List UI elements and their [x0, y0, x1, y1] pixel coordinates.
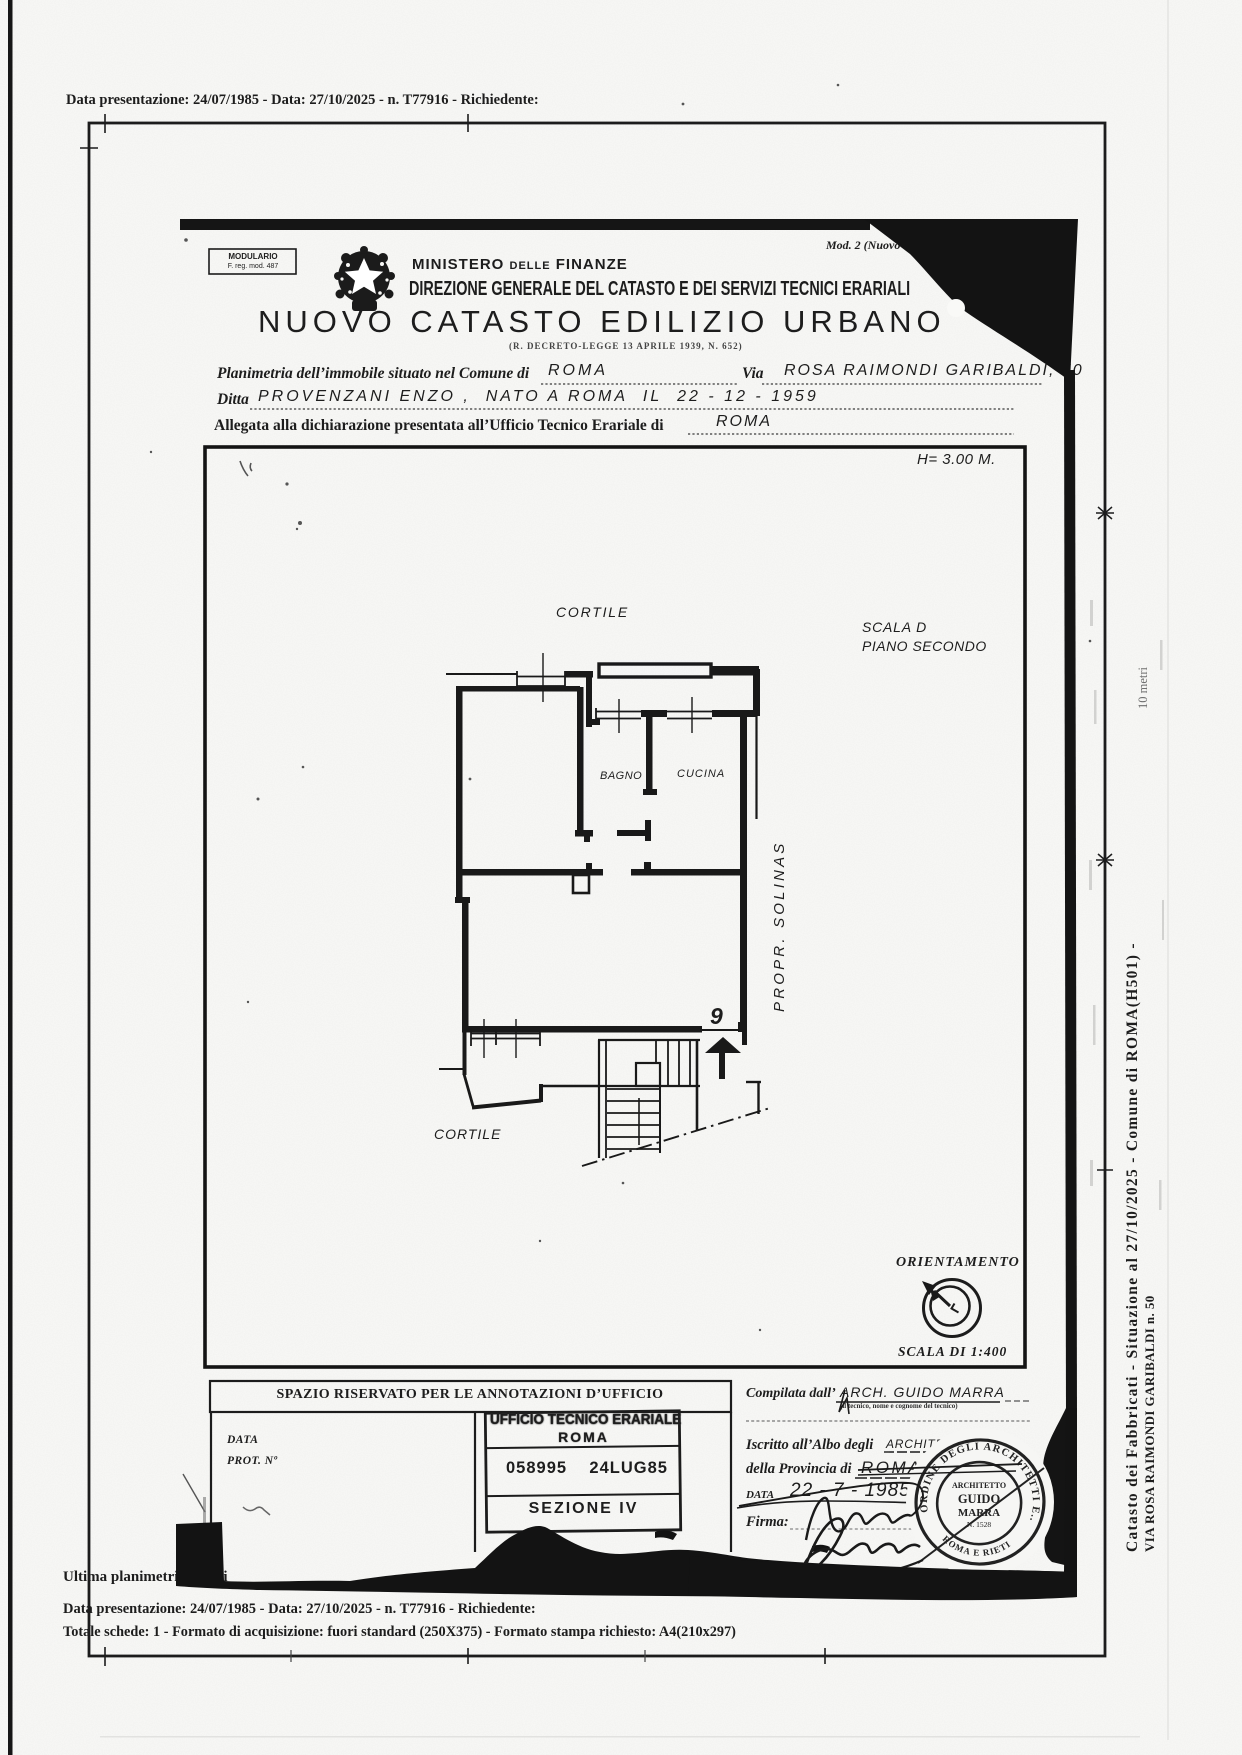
svg-text:ARCHITETTO: ARCHITETTO — [952, 1481, 1006, 1490]
svg-text:GUIDO: GUIDO — [958, 1492, 1001, 1506]
